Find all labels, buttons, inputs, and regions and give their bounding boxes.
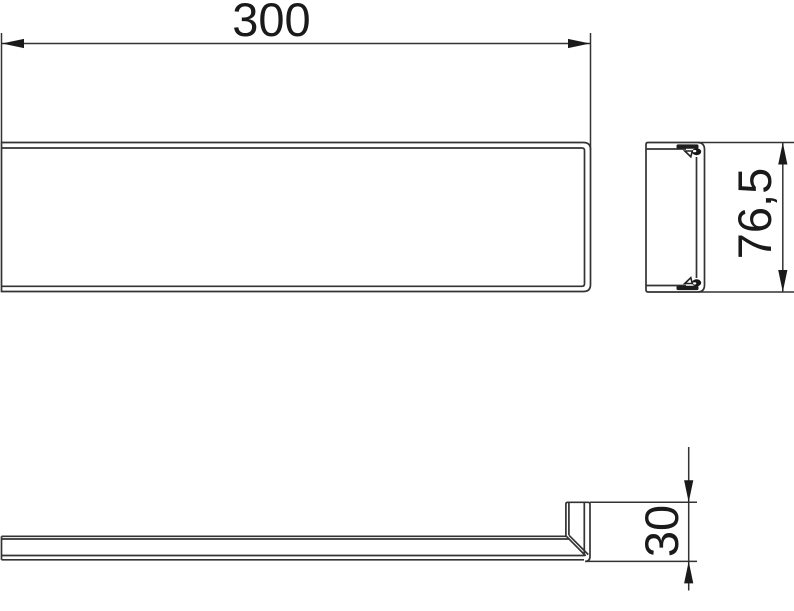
svg-text:300: 300 <box>232 0 310 46</box>
svg-text:30: 30 <box>635 505 688 557</box>
svg-text:76,5: 76,5 <box>728 168 781 259</box>
